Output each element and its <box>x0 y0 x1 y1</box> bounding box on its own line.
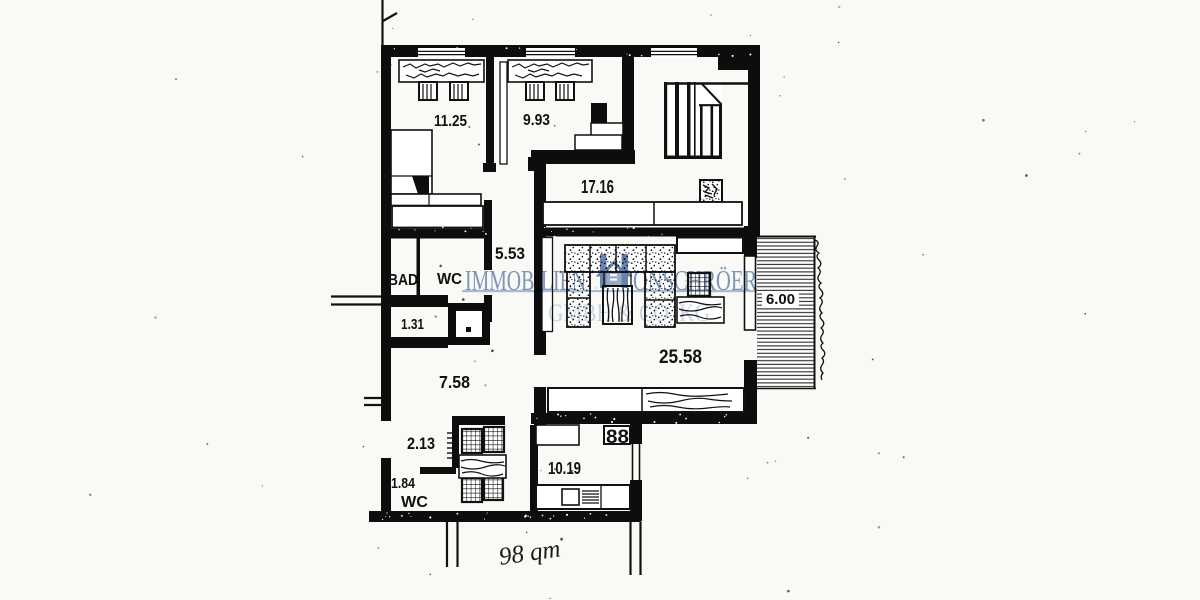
svg-text:GMBH & CO. KG: GMBH & CO. KG <box>548 300 710 327</box>
